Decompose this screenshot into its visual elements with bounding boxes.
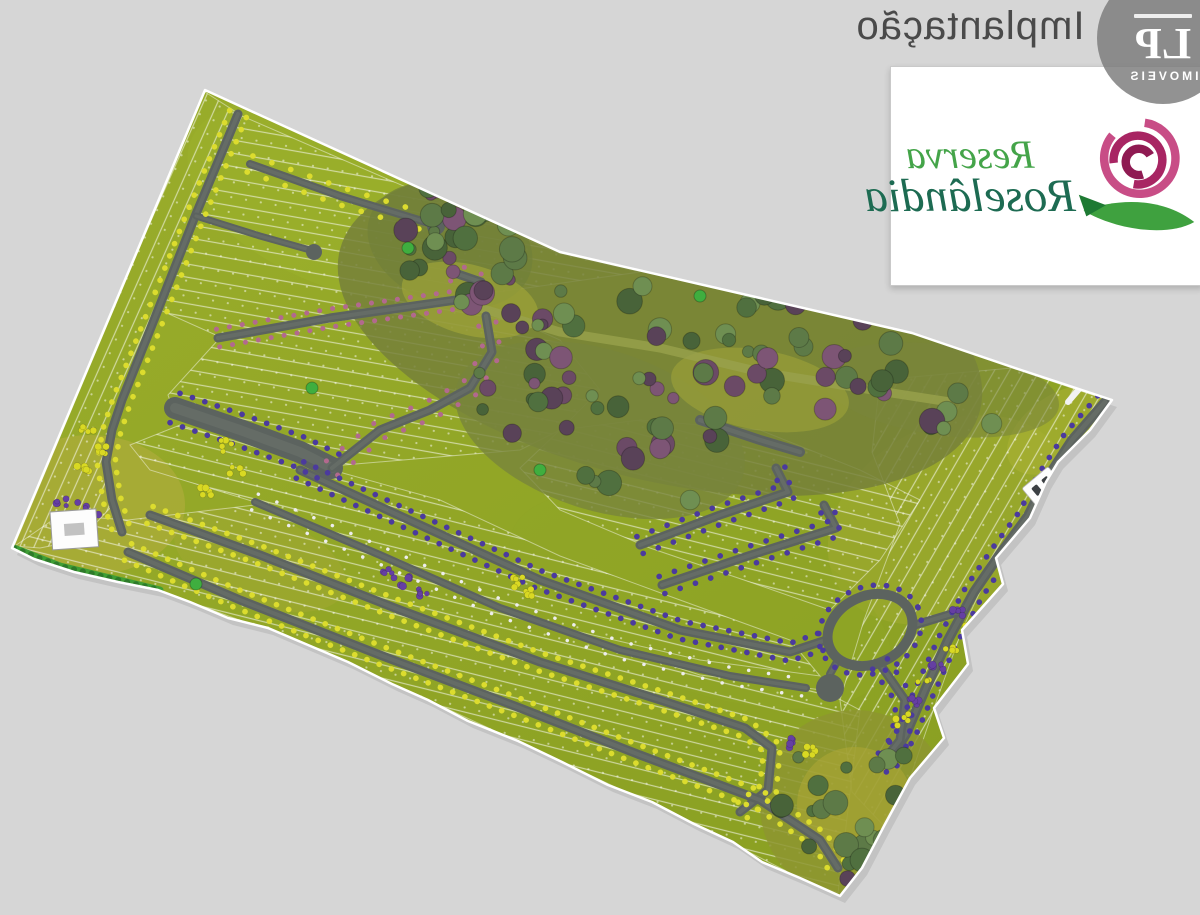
- tree: [666, 242, 691, 267]
- tree: [867, 872, 883, 888]
- tree: [737, 298, 757, 318]
- tree: [532, 319, 544, 331]
- tree: [426, 233, 444, 251]
- tree: [477, 404, 489, 416]
- flower-cluster-dot: [939, 662, 944, 667]
- tree: [948, 383, 969, 404]
- flower-cluster-dot: [220, 449, 225, 454]
- flower-cluster-dot: [511, 584, 518, 591]
- tree: [935, 309, 958, 332]
- flower-cluster-dot: [513, 576, 518, 581]
- tree: [528, 392, 548, 412]
- flower-cluster-dot: [802, 751, 809, 758]
- accent-tree: [402, 242, 414, 254]
- tree: [529, 378, 540, 389]
- tree: [537, 184, 556, 203]
- tree: [665, 236, 676, 247]
- flower-cluster-dot: [528, 586, 534, 592]
- tree: [625, 202, 650, 227]
- tree: [869, 757, 885, 773]
- tree: [633, 277, 652, 296]
- tree: [607, 396, 629, 418]
- tree: [816, 367, 835, 386]
- accent-tree: [694, 290, 706, 302]
- flower-cluster-dot: [520, 575, 526, 581]
- flower-cluster-dot: [892, 715, 899, 722]
- flower-cluster-dot: [103, 443, 110, 450]
- flower-cluster-dot: [237, 465, 243, 471]
- tree: [918, 296, 940, 318]
- tree: [636, 220, 659, 243]
- tree: [841, 762, 853, 774]
- flower-cluster-dot: [810, 744, 816, 750]
- tree: [474, 281, 493, 300]
- tree: [499, 237, 524, 262]
- brand-name-line2: Roselândia: [865, 173, 1076, 220]
- tree: [879, 332, 903, 356]
- flower-cluster-dot: [909, 695, 916, 702]
- flower-cluster-dot: [219, 438, 224, 443]
- flower-cluster-dot: [809, 752, 815, 758]
- tree: [755, 286, 775, 306]
- tree: [814, 398, 836, 420]
- flower-cluster-dot: [959, 612, 966, 619]
- tree: [937, 421, 951, 435]
- tree: [503, 424, 521, 442]
- tree: [633, 372, 646, 385]
- service-building: [50, 509, 99, 550]
- flower-cluster-dot: [901, 715, 906, 720]
- tree: [850, 378, 866, 394]
- tree: [703, 429, 717, 443]
- flower-cluster-dot: [804, 744, 811, 751]
- tree: [480, 380, 496, 396]
- flower-cluster-dot: [99, 449, 105, 455]
- tree: [789, 328, 809, 348]
- tree: [722, 333, 735, 346]
- flower-cluster-dot: [63, 496, 69, 502]
- tree: [591, 402, 604, 415]
- tree: [394, 218, 418, 242]
- tree: [420, 203, 444, 227]
- tree: [982, 414, 1002, 434]
- flower-cluster-dot: [956, 608, 961, 613]
- tree: [502, 304, 521, 323]
- tree: [550, 346, 573, 369]
- tree: [629, 211, 652, 234]
- flower-cluster-dot: [943, 646, 949, 652]
- tree: [694, 363, 714, 383]
- tree: [559, 184, 574, 199]
- tree: [567, 206, 589, 228]
- tree: [562, 371, 576, 385]
- tree: [895, 747, 912, 764]
- cul-de-sac: [816, 674, 844, 702]
- tree: [523, 184, 542, 203]
- screenshot-canvas: Implantação Reserva Roselândia LP IMOVEI…: [0, 0, 1200, 915]
- tree: [808, 775, 828, 795]
- flower-cluster-dot: [424, 591, 429, 596]
- flower-cluster-dot: [915, 679, 920, 684]
- tree: [586, 390, 598, 402]
- flower-cluster-dot: [529, 593, 535, 599]
- tree: [650, 438, 671, 459]
- tree: [639, 236, 660, 257]
- tree: [621, 447, 644, 470]
- flower-cluster-dot: [418, 591, 423, 596]
- flower-cluster-dot: [405, 574, 412, 581]
- flower-cluster-dot: [230, 465, 235, 470]
- tree: [908, 809, 926, 827]
- rose-logo-icon: [1076, 102, 1198, 250]
- flower-cluster-dot: [95, 443, 102, 450]
- flower-cluster-dot: [925, 679, 930, 684]
- brand-name: Reserva Roselândia: [865, 133, 1076, 220]
- accent-tree: [534, 464, 546, 476]
- flower-cluster-dot: [90, 427, 97, 434]
- watermark-small-text-bar: [1134, 14, 1192, 18]
- flower-cluster-dot: [80, 424, 86, 430]
- tree: [651, 417, 674, 440]
- tree: [770, 794, 793, 817]
- tree: [733, 275, 745, 287]
- flower-cluster-dot: [389, 571, 394, 576]
- tree: [559, 420, 574, 435]
- tree: [555, 285, 567, 297]
- tree: [668, 392, 679, 403]
- flower-cluster-dot: [219, 443, 225, 449]
- flower-cluster-dot: [64, 503, 69, 508]
- tree: [724, 376, 745, 397]
- tree: [871, 370, 893, 392]
- page-title: Implantação: [830, 4, 1110, 49]
- tree: [764, 388, 781, 405]
- flower-cluster-dot: [74, 463, 81, 470]
- tree: [547, 217, 567, 237]
- flower-cluster-dot: [85, 429, 90, 434]
- accent-tree: [306, 382, 318, 394]
- tree: [704, 406, 727, 429]
- flower-cluster-dot: [399, 582, 407, 590]
- flower-cluster-dot: [949, 606, 956, 613]
- tree: [577, 466, 595, 484]
- watermark-label: IMOVEIS: [1128, 69, 1199, 83]
- flower-cluster-dot: [894, 722, 900, 728]
- tree: [453, 226, 477, 250]
- tree: [656, 213, 678, 235]
- flower-cluster-dot: [55, 499, 60, 504]
- tree: [683, 332, 700, 349]
- flower-cluster-dot: [929, 661, 936, 668]
- tree: [454, 294, 469, 309]
- tree: [680, 490, 700, 510]
- tree: [757, 348, 778, 369]
- flower-cluster-dot: [229, 441, 234, 446]
- flower-cluster-dot: [200, 492, 206, 498]
- flower-cluster-dot: [949, 647, 955, 653]
- tree: [845, 286, 857, 298]
- tree: [823, 790, 848, 815]
- tree: [855, 818, 874, 837]
- tree: [474, 367, 485, 378]
- tree: [838, 349, 851, 362]
- tree: [999, 345, 1011, 357]
- tree: [516, 321, 529, 334]
- tree: [553, 303, 574, 324]
- flower-cluster-dot: [382, 570, 388, 576]
- flower-cluster-dot: [202, 484, 209, 491]
- flower-cluster-dot: [208, 492, 214, 498]
- tree: [446, 265, 460, 279]
- flower-cluster-dot: [75, 499, 81, 505]
- watermark-monogram: LP: [1135, 22, 1191, 66]
- cul-de-sac: [306, 244, 322, 260]
- tree: [400, 261, 420, 281]
- flower-cluster-dot: [227, 470, 234, 477]
- tree: [924, 318, 946, 340]
- tree: [802, 839, 817, 854]
- tree: [647, 327, 666, 346]
- accent-tree: [190, 578, 202, 590]
- flower-cluster-dot: [83, 466, 90, 473]
- tree: [652, 241, 665, 254]
- flower-cluster-dot: [786, 740, 793, 747]
